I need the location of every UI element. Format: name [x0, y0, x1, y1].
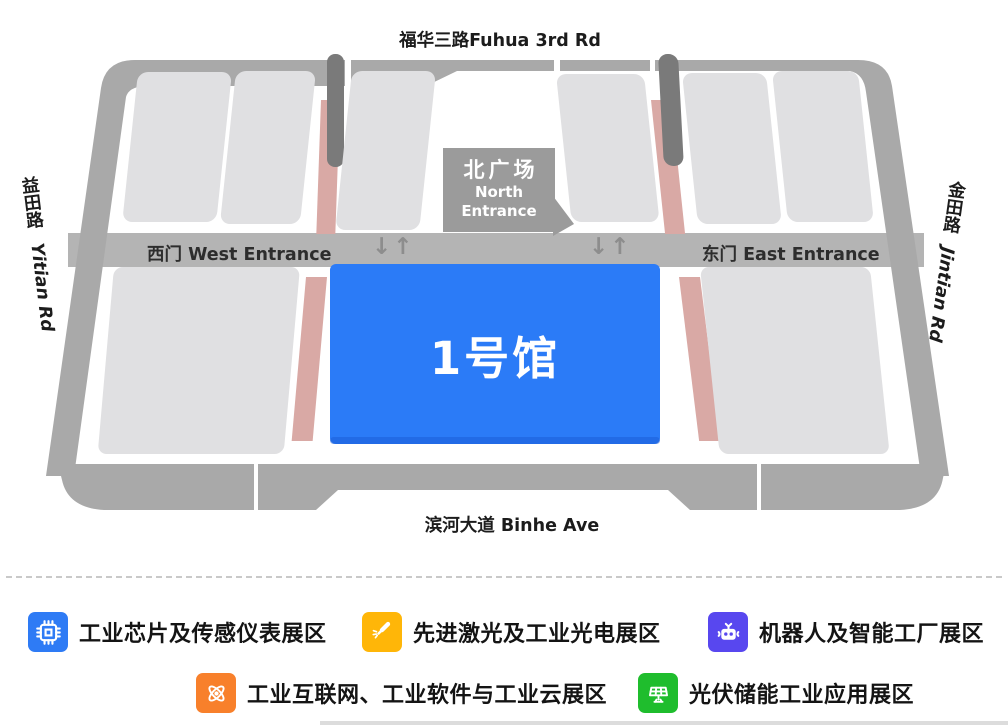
north-plaza-box: 北广场 North Entrance [443, 148, 555, 232]
gate-arrows-west: ↓↑ [372, 234, 415, 260]
solar-icon [638, 673, 678, 713]
robot-icon [708, 612, 748, 652]
hall-south-west [98, 267, 300, 454]
legend-label: 光伏储能工业应用展区 [689, 677, 914, 709]
legend-label: 工业芯片及传感仪表展区 [79, 616, 327, 648]
road-slit [757, 462, 761, 512]
road-label-bottom: 滨河大道 Binhe Ave [362, 512, 662, 537]
legend-item-industrial-internet: 工业互联网、工业软件与工业云展区 [196, 673, 607, 713]
east-entrance-label: 东门 East Entrance [702, 241, 880, 266]
legend-divider [6, 576, 1002, 578]
hall-north-west-2 [220, 71, 316, 224]
legend-label: 先进激光及工业光电展区 [413, 616, 661, 648]
legend-label: 工业互联网、工业软件与工业云展区 [247, 677, 607, 709]
hall-north-west-3 [335, 71, 436, 230]
north-plaza-cn: 北广场 [464, 158, 539, 182]
legend-item-solar: 光伏储能工业应用展区 [638, 673, 914, 713]
legend-item-chips: 工业芯片及传感仪表展区 [28, 612, 327, 652]
road-slit [254, 462, 258, 512]
bottom-road [58, 464, 946, 510]
chip-icon [28, 612, 68, 652]
road-label-top: 福华三路Fuhua 3rd Rd [350, 27, 650, 52]
hall-south-east [700, 267, 890, 454]
border-slit [345, 56, 351, 90]
hall-1-label[interactable]: 1号馆 [330, 264, 660, 444]
west-entrance-label: 西门 West Entrance [147, 241, 331, 266]
laser-icon [362, 612, 402, 652]
north-plaza-en2: Entrance [461, 202, 536, 222]
border-slit [650, 56, 655, 74]
hall-north-east-1 [556, 74, 660, 222]
network-icon [196, 673, 236, 713]
hall-north-east-3 [772, 71, 874, 222]
legend-item-robot: 机器人及智能工厂展区 [708, 612, 984, 652]
service-corridor-west [327, 54, 344, 167]
north-plaza-en1: North [475, 183, 523, 203]
hall-north-west-1 [122, 72, 232, 222]
border-slit [554, 56, 560, 74]
gate-arrows-east: ↓↑ [589, 234, 632, 260]
legend-label: 机器人及智能工厂展区 [759, 616, 984, 648]
bottom-edge-strip [320, 721, 1008, 725]
hall-north-east-2 [682, 73, 782, 224]
legend-item-laser: 先进激光及工业光电展区 [362, 612, 661, 652]
